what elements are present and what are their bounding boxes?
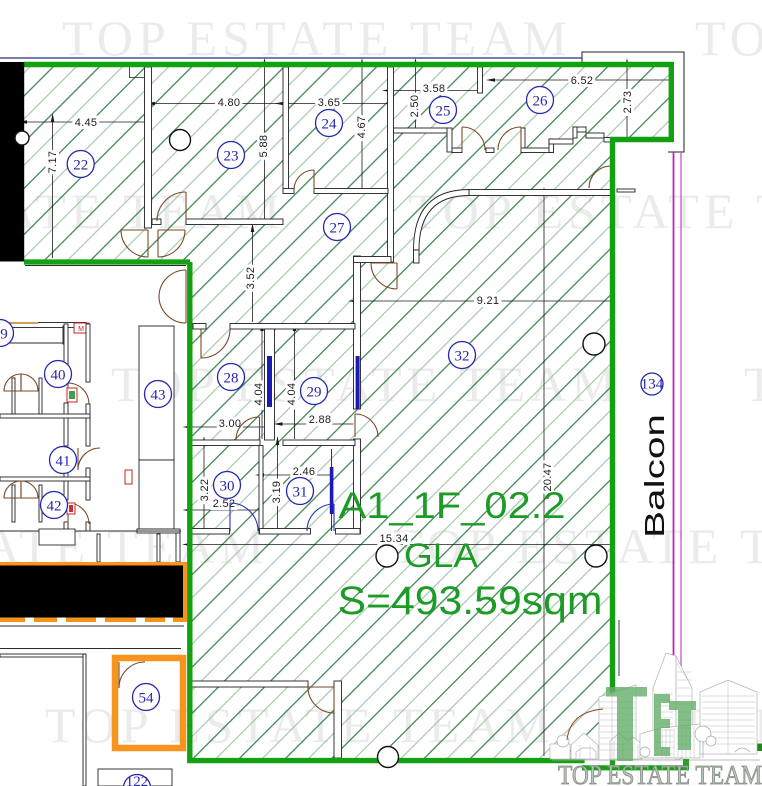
svg-text:9: 9 xyxy=(0,326,8,342)
svg-text:3.00: 3.00 xyxy=(219,418,242,430)
svg-text:4.67: 4.67 xyxy=(356,116,368,139)
svg-text:41: 41 xyxy=(56,453,71,469)
svg-text:2.50: 2.50 xyxy=(409,95,421,118)
svg-text:26: 26 xyxy=(533,93,549,109)
svg-text:4.80: 4.80 xyxy=(218,97,241,109)
svg-text:2.73: 2.73 xyxy=(622,91,634,114)
svg-text:24: 24 xyxy=(322,116,338,132)
svg-text:3.52: 3.52 xyxy=(245,267,257,290)
svg-text:54: 54 xyxy=(139,690,155,706)
svg-text:22: 22 xyxy=(73,157,88,173)
svg-text:4.04: 4.04 xyxy=(253,383,265,406)
svg-text:4.04: 4.04 xyxy=(286,383,298,406)
svg-text:40: 40 xyxy=(51,367,66,383)
svg-text:3.22: 3.22 xyxy=(199,479,211,502)
svg-text:3.58: 3.58 xyxy=(423,83,446,95)
svg-text:32: 32 xyxy=(455,348,470,364)
svg-text:Balcon: Balcon xyxy=(639,414,670,538)
svg-text:TOP ESTATE TEAM: TOP ESTATE TEAM xyxy=(744,356,762,412)
svg-text:7.17: 7.17 xyxy=(47,151,59,174)
svg-text:30: 30 xyxy=(220,478,235,494)
svg-text:M: M xyxy=(78,326,84,333)
svg-text:42: 42 xyxy=(47,498,62,514)
svg-text:3.65: 3.65 xyxy=(318,97,341,109)
svg-text:5.88: 5.88 xyxy=(258,135,270,158)
svg-text:6.52: 6.52 xyxy=(571,75,594,87)
svg-text:2.88: 2.88 xyxy=(309,414,332,426)
svg-text:S=493.59sqm: S=493.59sqm xyxy=(338,579,603,623)
svg-text:2.52: 2.52 xyxy=(213,498,236,510)
svg-text:4.45: 4.45 xyxy=(75,117,98,129)
svg-text:27: 27 xyxy=(330,220,346,236)
svg-text:23: 23 xyxy=(224,148,239,164)
svg-text:31: 31 xyxy=(293,484,308,500)
svg-text:122: 122 xyxy=(126,774,149,786)
svg-text:134: 134 xyxy=(641,376,664,392)
svg-text:43: 43 xyxy=(151,387,166,403)
svg-text:28: 28 xyxy=(224,370,239,386)
svg-text:A1_1F_02.2: A1_1F_02.2 xyxy=(339,485,566,526)
svg-text:TOP ESTATE TEAM: TOP ESTATE TEAM xyxy=(558,760,762,786)
svg-text:25: 25 xyxy=(436,103,451,119)
svg-text:2.46: 2.46 xyxy=(293,466,316,478)
svg-text:3.19: 3.19 xyxy=(271,481,283,504)
svg-text:29: 29 xyxy=(307,384,322,400)
svg-text:9.21: 9.21 xyxy=(477,295,500,307)
svg-text:GLA: GLA xyxy=(404,537,478,575)
